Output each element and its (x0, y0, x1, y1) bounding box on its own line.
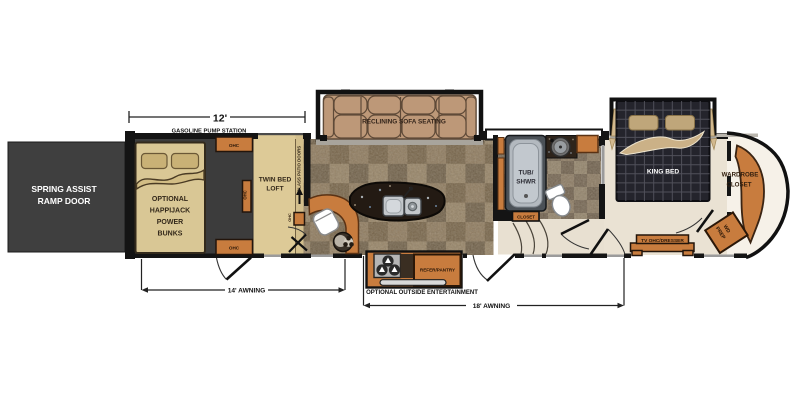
svg-text:WARDROBE: WARDROBE (722, 172, 759, 179)
svg-text:CLOSET: CLOSET (517, 215, 535, 220)
svg-text:OPTIONAL OUTSIDE ENTERTAINMENT: OPTIONAL OUTSIDE ENTERTAINMENT (366, 290, 478, 296)
svg-text:TWIN BED: TWIN BED (259, 177, 292, 184)
svg-text:14' AWNING: 14' AWNING (228, 287, 266, 294)
svg-text:POWER: POWER (157, 219, 183, 226)
svg-text:OHC: OHC (288, 213, 292, 222)
svg-text:HAPPIJACK: HAPPIJACK (150, 208, 190, 215)
svg-text:OHC: OHC (243, 190, 248, 199)
svg-text:OHC: OHC (229, 246, 240, 251)
svg-text:18' AWNING: 18' AWNING (473, 303, 511, 310)
svg-text:BUNKS: BUNKS (158, 231, 183, 238)
svg-text:TUB/: TUB/ (519, 170, 534, 177)
svg-text:TV OHC/DRESSER: TV OHC/DRESSER (641, 238, 684, 244)
svg-text:GLASS PATIO DOORS: GLASS PATIO DOORS (297, 146, 302, 192)
svg-text:KING BED: KING BED (647, 169, 679, 176)
svg-text:12': 12' (213, 113, 227, 125)
svg-text:RECLINING SOFA SEATING: RECLINING SOFA SEATING (362, 119, 446, 126)
svg-text:OPTIONAL: OPTIONAL (152, 196, 189, 203)
svg-text:OHC: OHC (229, 143, 240, 148)
svg-text:SPRING ASSIST: SPRING ASSIST (31, 184, 97, 194)
svg-text:REFER/PANTRY: REFER/PANTRY (420, 268, 455, 273)
svg-text:SHWR: SHWR (516, 179, 536, 186)
svg-text:RAMP DOOR: RAMP DOOR (38, 196, 91, 206)
svg-text:CLOSET: CLOSET (726, 182, 751, 189)
svg-text:GASOLINE PUMP STATION: GASOLINE PUMP STATION (172, 129, 247, 135)
svg-text:LOFT: LOFT (266, 186, 283, 193)
